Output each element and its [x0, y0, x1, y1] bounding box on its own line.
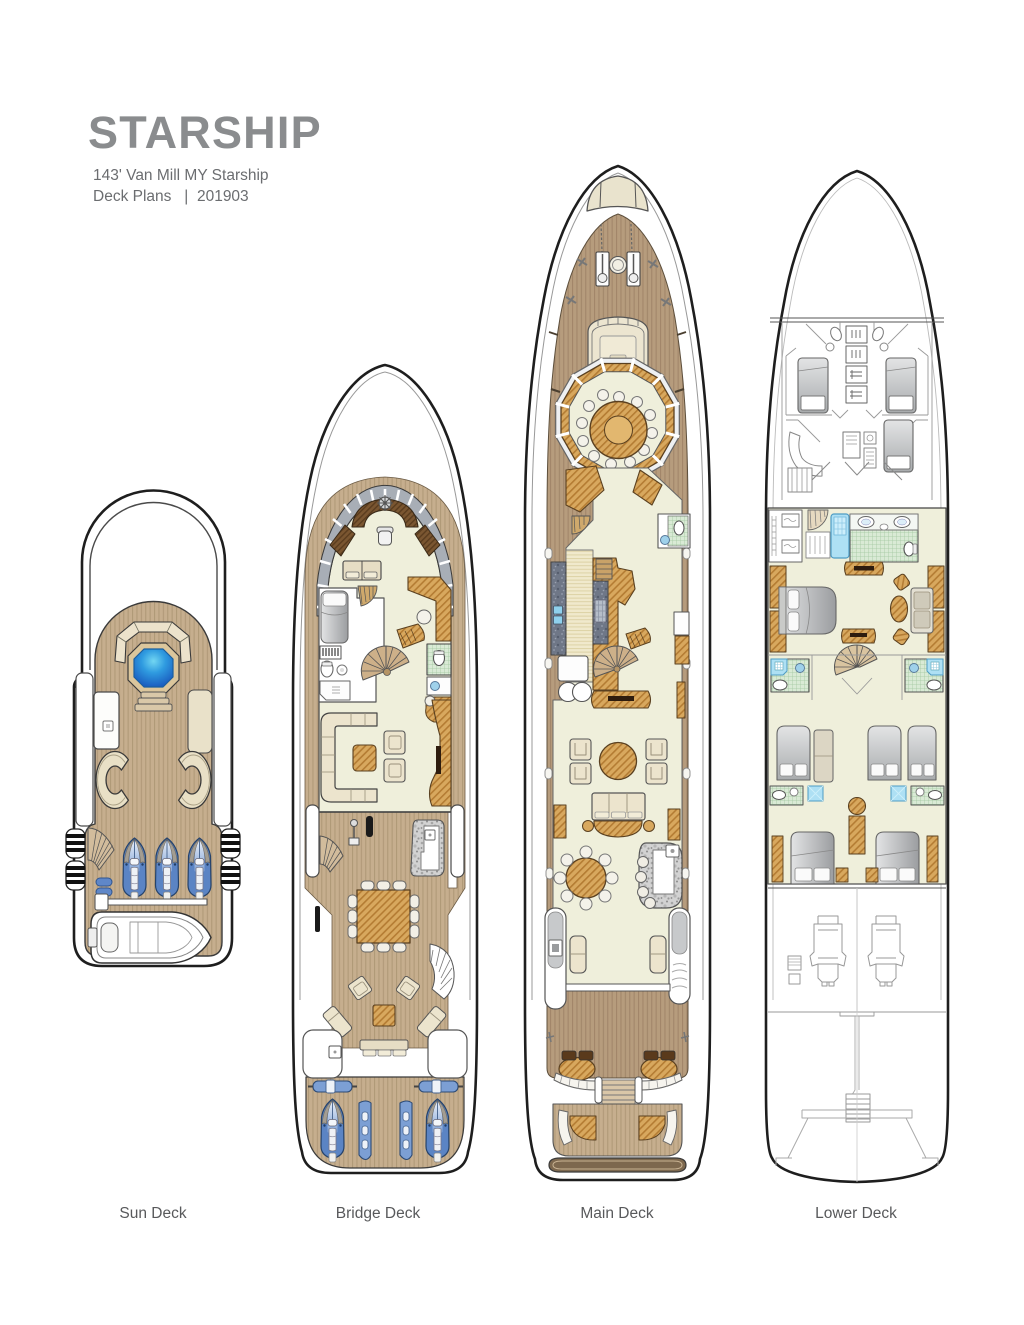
svg-text:STARSHIP: STARSHIP: [88, 107, 322, 158]
svg-text:143' Van Mill MY Starship: 143' Van Mill MY Starship: [93, 167, 269, 184]
svg-text:Lower Deck: Lower Deck: [815, 1205, 897, 1222]
svg-text:Bridge Deck: Bridge Deck: [336, 1205, 421, 1222]
svg-text:Main Deck: Main Deck: [580, 1205, 653, 1222]
svg-text:Sun Deck: Sun Deck: [119, 1205, 186, 1222]
svg-text:Deck Plans | 201903: Deck Plans | 201903: [93, 188, 249, 205]
